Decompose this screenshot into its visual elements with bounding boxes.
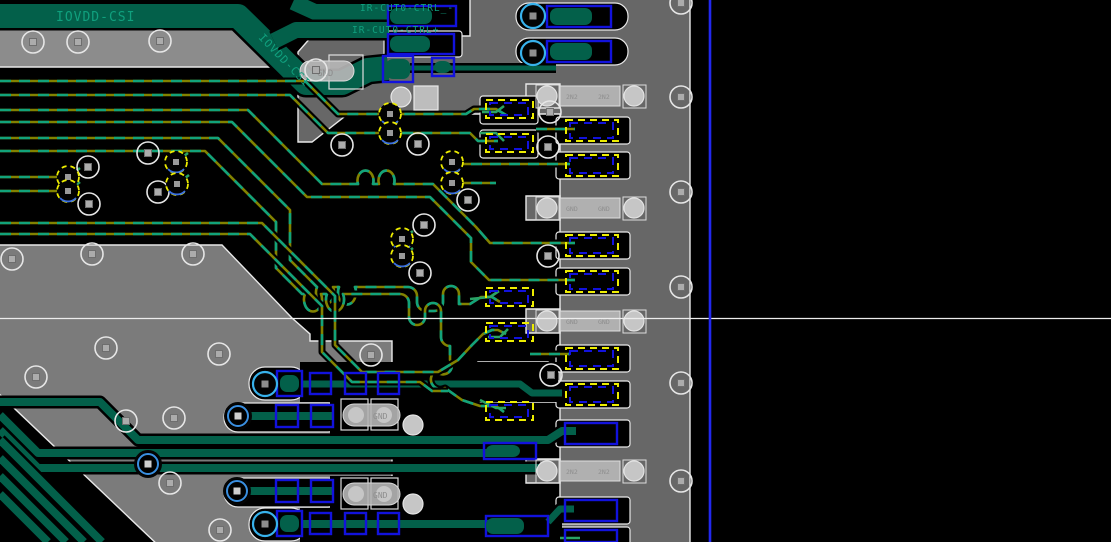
pad-copper-fill bbox=[550, 43, 592, 60]
net-label-ir-cut0-ctrl-minus[interactable]: IR-CUT0-CTRL_- bbox=[360, 3, 454, 14]
pad-copper-fill bbox=[390, 36, 430, 52]
via-hole bbox=[387, 111, 393, 117]
via-hole bbox=[216, 351, 223, 358]
via-hole bbox=[530, 50, 537, 57]
component-pad[interactable] bbox=[414, 86, 438, 110]
top-copper-strip[interactable] bbox=[0, 25, 272, 67]
component-pad[interactable] bbox=[537, 311, 557, 331]
via-hole bbox=[678, 380, 685, 387]
pad-copper-fill bbox=[486, 518, 524, 534]
component-pad-label: 2N2 bbox=[598, 93, 610, 101]
via-hole bbox=[417, 270, 424, 277]
component-pad-label: 2N2 bbox=[566, 93, 578, 101]
via-hole bbox=[174, 181, 180, 187]
component-pad-label: 2N2 bbox=[598, 468, 610, 476]
via-hole bbox=[548, 372, 555, 379]
pad-copper-fill bbox=[550, 8, 592, 25]
via-hole bbox=[678, 94, 685, 101]
via-hole bbox=[465, 197, 472, 204]
via-hole bbox=[86, 201, 93, 208]
via-hole bbox=[530, 13, 537, 20]
pcb-editor-viewport[interactable]: 2N22N2GNDGNDGNDGND2N22N2GNDGNDGND IOVDD-… bbox=[0, 0, 1111, 542]
via-hole bbox=[33, 374, 40, 381]
via-hole bbox=[313, 67, 320, 74]
via-hole bbox=[678, 284, 685, 291]
component-pad-label: GND bbox=[566, 318, 578, 326]
via-hole bbox=[145, 150, 152, 157]
via-hole bbox=[387, 130, 393, 136]
component-pad[interactable] bbox=[348, 407, 364, 423]
component-pad[interactable] bbox=[537, 198, 557, 218]
via-hole bbox=[449, 180, 455, 186]
via-hole bbox=[123, 418, 130, 425]
pad-copper-fill bbox=[280, 375, 299, 392]
via-hole bbox=[678, 478, 685, 485]
component-pad[interactable] bbox=[624, 461, 644, 481]
via-hole bbox=[262, 521, 269, 528]
via-hole bbox=[545, 253, 552, 260]
via-hole bbox=[9, 256, 16, 263]
via-hole bbox=[415, 141, 422, 148]
component-label-gnd: GND bbox=[373, 491, 388, 500]
pad-copper-fill bbox=[434, 61, 451, 73]
via-hole bbox=[103, 345, 110, 352]
via-hole bbox=[65, 174, 71, 180]
via-hole bbox=[85, 164, 92, 171]
via-hole bbox=[157, 38, 164, 45]
component-pad[interactable] bbox=[537, 86, 557, 106]
via-hole bbox=[173, 159, 179, 165]
via-hole bbox=[368, 352, 375, 359]
via-hole bbox=[145, 461, 152, 468]
via-hole bbox=[171, 415, 178, 422]
component-pad[interactable] bbox=[624, 198, 644, 218]
via-hole bbox=[545, 144, 552, 151]
component-pad-label: GND bbox=[598, 205, 610, 213]
via-hole bbox=[75, 39, 82, 46]
via-hole bbox=[190, 251, 197, 258]
component-pad-label: GND bbox=[566, 205, 578, 213]
via-hole bbox=[30, 39, 37, 46]
via-hole bbox=[235, 413, 242, 420]
component-pad-label: GND bbox=[598, 318, 610, 326]
component-label-gnd: GND bbox=[373, 412, 388, 421]
via-hole bbox=[399, 236, 405, 242]
component-pad-label: 2N2 bbox=[566, 468, 578, 476]
via-hole bbox=[262, 381, 269, 388]
via-hole bbox=[547, 109, 554, 116]
pad-copper-fill bbox=[386, 59, 410, 79]
via-hole bbox=[167, 480, 174, 487]
via-hole bbox=[89, 251, 96, 258]
pad-copper-fill bbox=[486, 445, 520, 457]
net-label-iovdd-csi[interactable]: IOVDD-CSI bbox=[56, 10, 135, 25]
component-pad[interactable] bbox=[537, 461, 557, 481]
via-hole bbox=[65, 188, 71, 194]
via-hole bbox=[678, 0, 685, 7]
via-hole bbox=[217, 527, 224, 534]
component-pad[interactable] bbox=[403, 494, 423, 514]
component-pad[interactable] bbox=[624, 86, 644, 106]
via-hole bbox=[678, 189, 685, 196]
pcb-canvas: 2N22N2GNDGNDGNDGND2N22N2GNDGNDGND IOVDD-… bbox=[0, 0, 1111, 542]
component-pad[interactable] bbox=[348, 486, 364, 502]
component-pad[interactable] bbox=[403, 415, 423, 435]
via-hole bbox=[449, 159, 455, 165]
via-hole bbox=[421, 222, 428, 229]
via-hole bbox=[234, 488, 241, 495]
via-hole bbox=[155, 189, 162, 196]
pad-copper-fill bbox=[280, 515, 299, 532]
via-hole bbox=[399, 253, 405, 259]
component-pad[interactable] bbox=[624, 311, 644, 331]
net-label-ir-cut0-ctrl-plus[interactable]: IR-CUT0-CTRL+ bbox=[352, 25, 439, 36]
via-hole bbox=[339, 142, 346, 149]
